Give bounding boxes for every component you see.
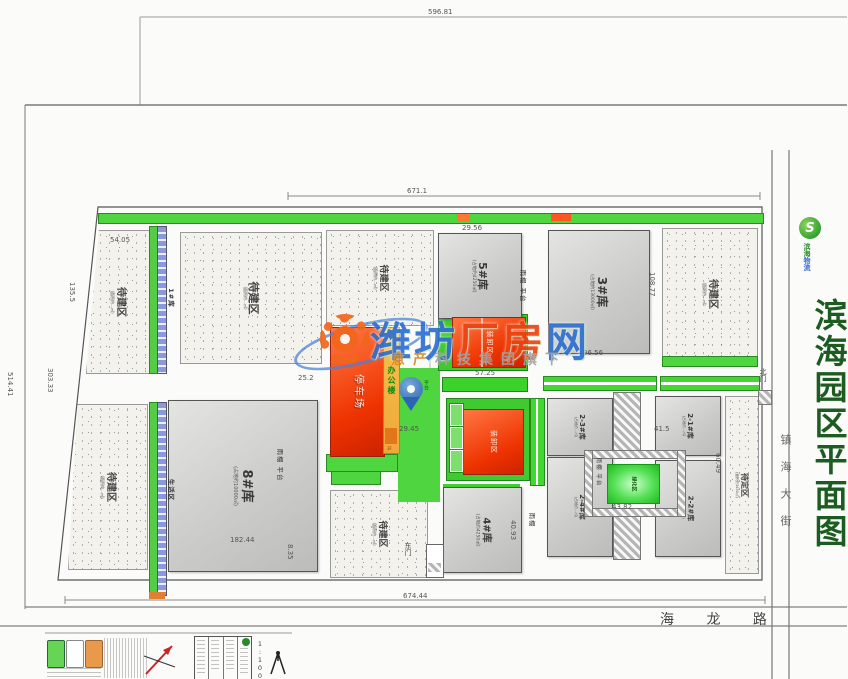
loading-label: 装卸区 [485,331,493,355]
dim-left-upper: 135.5 [68,282,76,302]
street-right-label: 镇海大街 [777,434,793,542]
warehouse-3: 3#库(占地约13000㎡) [548,230,650,354]
canopy-platform-label: 雨棚 平台 [519,269,529,302]
building-sub: (占地约4250㎡) [474,514,479,547]
building-label: 8#库 [238,470,254,503]
building-sub: (占地约13000㎡) [589,274,594,310]
logo-company: 滨海物流 [802,243,812,271]
area-sub: (面积约3450㎡) [735,472,739,498]
table-logo-dot [242,638,250,646]
building-sub: (占地约…㎡) [574,497,578,517]
office-annex [385,428,397,444]
strip-building-units [157,226,167,374]
area-sub: (面积约…㎡) [702,282,707,305]
building-sub: (占地约…㎡) [574,417,578,437]
gate-hatch [428,563,441,572]
legend-swatch-orange [85,640,103,668]
platform-label: 平台 [423,380,430,390]
dim-office-w: 29.45 [399,425,419,433]
dim-inner-width: 671.1 [407,187,427,195]
building-sub: (占地约4250㎡) [471,260,476,293]
north-arrow-icon [142,640,178,678]
gate-marker [551,214,571,221]
area-label: 待建区 [247,282,260,315]
building-label: 1#库 [167,288,177,307]
dim-w8: 182.44 [230,536,255,544]
loading-yard: 装卸区 [452,317,526,368]
office-floors: 3F [387,446,392,451]
building-sub: (占地约…㎡) [682,416,686,436]
green-space-label: 绿化区 [631,476,637,491]
pending-area: 待建区(面积约…㎡) [662,228,758,360]
dim-h3: 108.77 [648,272,656,297]
title-block-table [194,636,252,679]
area-sub: (面积约…㎡) [100,475,105,498]
area-sub: (面积约…㎡) [371,522,376,545]
area-label: 待建区 [114,287,126,317]
area-sub: (面积约…㎡) [110,290,115,313]
office-building: 办公楼 3F [383,327,400,454]
parking-label: 停车场 [352,374,364,410]
logo-company-2: 物流 [803,257,811,271]
dim-top-left: 54.05 [110,236,130,244]
building-label: 2-1#库 [686,413,694,439]
area-label: 待建区 [706,279,718,309]
strip-cap [149,592,165,599]
table-column [224,637,238,679]
dim-h8-gap: 8.35 [286,544,294,560]
canopy-platform-label: 雨棚 平台 [595,458,603,487]
legend-caption-noise [47,668,101,677]
building-label: 4#库 [479,517,491,542]
dim-court-w: 41.5 [654,425,670,433]
area-sub: (面积约…㎡) [372,266,377,289]
pending-area: 待建区(面积约…㎡) [326,230,434,326]
dim-green-w: 43.82 [612,503,632,511]
gate-east-label: 东门 [403,542,413,556]
parking-lot: 停车场 [330,327,385,457]
scale-label: 1:1000 [256,640,264,679]
pending-area: 待建区(面积约…㎡) [330,490,428,578]
building-sub: (占地约10000㎡) [232,466,238,506]
hatched-wall [677,450,686,517]
dim-left-mid: 303.33 [46,368,54,393]
page-title: 滨海园区平面图 [804,298,848,558]
gate-marker [457,214,470,221]
logo-letter: S [805,221,814,236]
dim-right-h: 60.49 [714,453,722,473]
green-belt [543,376,657,391]
loading-yard: 装卸区 [463,409,524,475]
building-label: 生活区 [167,479,177,502]
area-sub: (面积约…㎡) [242,286,247,309]
dim-w5: 29.56 [462,224,482,232]
warehouse-8: 8#库(占地约10000㎡) [168,400,318,572]
company-logo: S [799,217,821,239]
building-label: 5#库 [476,262,489,290]
canopy-platform-label: 雨棚 平台 [276,448,286,481]
gate-hatch [758,390,772,405]
dim-gap8: 25.2 [298,374,314,382]
dock-door [450,404,463,426]
dim-bottom-width: 674.44 [403,592,428,600]
building-label: 2-3#库 [578,414,586,440]
gate-north-label: 北门 [758,368,768,382]
green-belt [662,356,758,367]
dock-door [450,450,463,472]
dim-loading-w: 57.25 [475,369,495,377]
dock-door [450,427,463,449]
green-belt [530,398,545,486]
green-belt [442,377,528,392]
table-column [195,637,209,679]
dim-w3: 96.56 [583,349,603,357]
area-label: 待定区 [739,473,749,497]
pending-area: 待建区(面积约…㎡) [68,404,148,570]
logo-company-1: 滨海 [803,243,811,257]
loading-label: 装卸区 [489,430,497,454]
divider-tool-icon [266,650,290,677]
warehouse-2-3: 2-3#库(占地约…㎡) [547,398,613,456]
site-plan-page: 待建区(面积约…㎡) 待建区(面积约…㎡) 待建区(面积约…㎡) 待建区(面积约… [0,0,848,679]
table-column [238,637,251,679]
road-bottom-label: 海 龙 路 [660,609,781,629]
table-column [209,637,223,679]
hatched-wall [584,450,593,517]
building-label: 2-2#库 [686,496,694,522]
green-space: 绿化区 [607,464,660,504]
dim-top-width: 596.81 [428,8,453,16]
warehouse-2-4: 2-4#库(占地约…㎡) [547,457,613,557]
green-belt [660,376,760,391]
green-belt [331,471,381,485]
dim-left-height: 514.41 [6,372,14,397]
building-label: 3#库 [595,277,609,307]
canopy-label: 雨棚 [528,513,538,528]
green-belt-top [98,213,764,224]
dim-h4: 40.93 [509,520,517,540]
hatched-wall [613,392,641,454]
pending-area: 待建区(面积约…㎡) [180,232,322,364]
area-label: 待建区 [104,472,116,502]
office-label: 办公楼 [386,366,397,396]
area-label: 待建区 [376,520,387,547]
legend-swatch-green [47,640,65,668]
area-label: 待建区 [377,264,388,291]
gate-house [426,544,444,578]
legend-swatch-white [66,640,84,668]
